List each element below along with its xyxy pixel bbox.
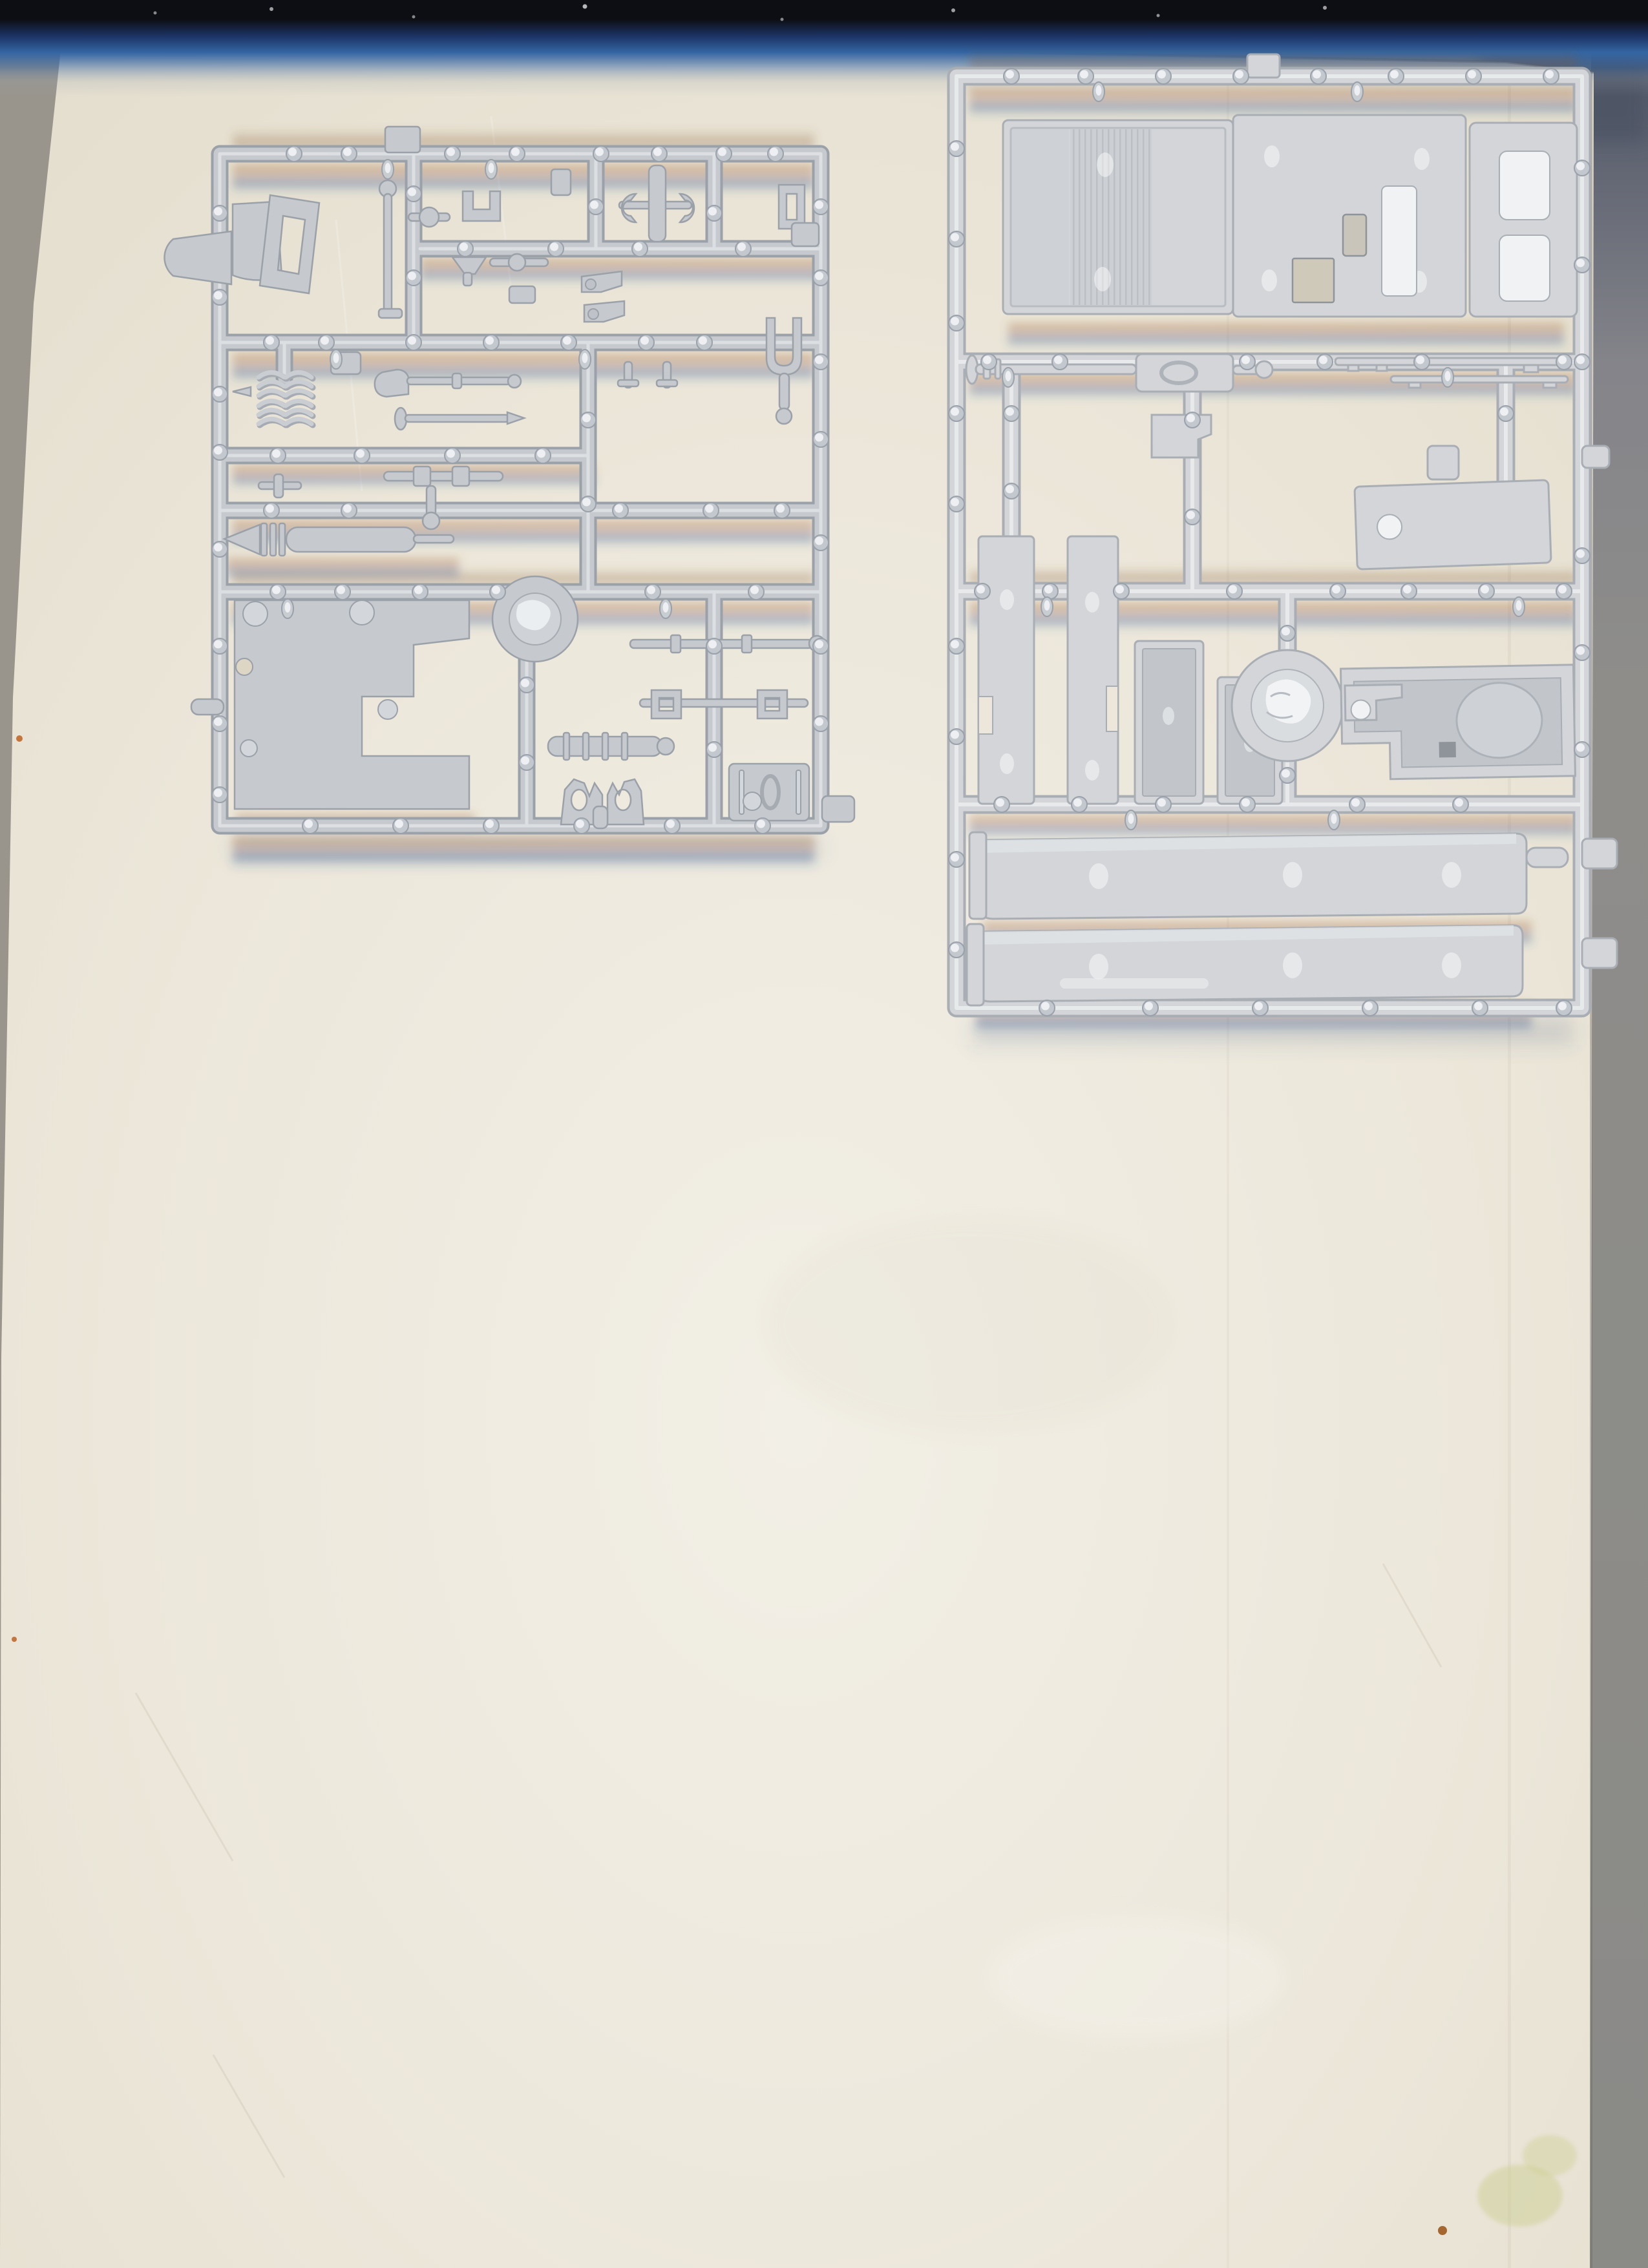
door-panel-part — [1470, 123, 1577, 317]
gear-lever-part — [384, 194, 392, 311]
sprue-gate — [1574, 160, 1590, 176]
sprue-gate — [483, 335, 499, 350]
sprue-gate — [1280, 625, 1295, 641]
tab-part — [1582, 938, 1617, 968]
sprue-gate — [1574, 645, 1590, 660]
sprue-gate — [212, 787, 227, 803]
sprue-gate — [1004, 68, 1019, 84]
sprue-gate — [212, 289, 227, 305]
sprue-gate — [212, 541, 227, 557]
sprue-gate — [1252, 1000, 1268, 1016]
sprue-gate — [1574, 257, 1590, 273]
right-margin-strip — [1591, 0, 1648, 2268]
sprue-gate — [706, 742, 722, 757]
roof-panel-part — [1233, 115, 1466, 317]
sprue-gate — [264, 503, 279, 518]
sprue-gate — [1114, 583, 1129, 599]
sprue-gate — [341, 146, 357, 162]
sprue-gate — [341, 503, 357, 518]
paper-smudge — [763, 1215, 1176, 1434]
sprue-gate — [1004, 483, 1019, 499]
sprue-gate — [716, 146, 732, 162]
block-part — [509, 286, 535, 303]
bracket-hole — [588, 309, 598, 319]
sprue-gate — [580, 412, 596, 428]
sprue-gate — [393, 818, 408, 834]
sprue-gate — [1317, 354, 1333, 370]
sprue-gate — [1078, 68, 1093, 84]
sprue-gate — [706, 205, 722, 221]
sprue-gate — [813, 199, 829, 215]
sprue-gate — [651, 146, 667, 162]
tab-part — [1582, 839, 1617, 868]
sprue-gate — [406, 186, 421, 202]
tab-part — [822, 796, 854, 822]
sprue-gate — [975, 583, 990, 599]
sprue-gate — [1052, 354, 1068, 370]
stub-part — [191, 699, 224, 715]
sprue-gate — [264, 335, 279, 350]
tab-part — [792, 223, 819, 246]
bracket-hole — [586, 279, 596, 289]
sprue-gate — [406, 270, 421, 286]
sprue-gate — [270, 584, 286, 600]
sprue-gate — [1311, 68, 1326, 84]
sprue-gate — [1125, 810, 1137, 830]
sprue-gate — [1330, 583, 1346, 599]
sprue-gate — [490, 584, 505, 600]
sprue-gate — [445, 448, 460, 463]
chassis-rail-part — [969, 832, 1568, 919]
tab-part — [551, 169, 571, 195]
sprue-gate — [613, 503, 628, 518]
sprue-gate — [1185, 509, 1200, 525]
sprue-gate — [302, 818, 318, 834]
sprue-gate — [593, 146, 609, 162]
sprue-gate — [949, 729, 964, 744]
gear-lever-foot — [379, 309, 402, 318]
sprue-gate — [1240, 797, 1255, 812]
sprue-gate — [755, 818, 770, 834]
sprue-gate — [1479, 583, 1494, 599]
tab-part — [1247, 54, 1280, 78]
funnel-stem — [463, 273, 472, 286]
sprue-gate — [212, 386, 227, 402]
sprue-gate — [949, 406, 964, 421]
sprue-gate — [519, 677, 534, 693]
pin-part — [405, 415, 509, 422]
sprue-gate — [406, 335, 421, 350]
sprue-gate — [212, 445, 227, 460]
sprue-gate — [949, 141, 964, 156]
sprue-gate — [1574, 354, 1590, 370]
ball-joint — [419, 207, 439, 227]
sprue-gate — [548, 241, 564, 257]
fork-stem — [779, 373, 789, 410]
sprue-gate — [1401, 583, 1417, 599]
sprue-gate — [813, 354, 829, 370]
sprue-gate — [813, 535, 829, 551]
sprue-gate — [949, 315, 964, 331]
stub-part — [1582, 446, 1609, 468]
seat-panel-part — [729, 764, 809, 821]
sprue-gate — [1472, 1000, 1488, 1016]
sprue-gate — [1041, 597, 1053, 616]
sprue-gate — [1233, 68, 1249, 84]
sprue-gate — [535, 448, 551, 463]
sprue-gate — [813, 270, 829, 286]
sprue-gate — [1042, 583, 1058, 599]
orange-fleck — [12, 1637, 17, 1642]
sprue-gate — [1453, 797, 1468, 812]
sprue-gate — [286, 146, 302, 162]
sprue-gate — [382, 160, 394, 179]
sprue-gate — [949, 496, 964, 512]
sprue-gate — [1328, 810, 1340, 830]
sprue-gate — [1039, 1000, 1055, 1016]
sprue-gate — [445, 146, 460, 162]
sprue-gate — [1362, 1000, 1378, 1016]
roof-hatch-hole — [1293, 258, 1334, 302]
sprue-gate — [735, 241, 751, 257]
sprue-gate — [330, 350, 342, 369]
roof-slot — [1343, 215, 1366, 256]
sprue-gate — [1466, 68, 1481, 84]
sprue-gate — [270, 448, 286, 463]
ball-joint — [776, 408, 792, 424]
orange-fleck — [16, 735, 23, 742]
sprue-gate — [1185, 412, 1200, 428]
sprue-gate — [949, 638, 964, 654]
sprue-gate — [664, 818, 680, 834]
sprue-gate — [1556, 583, 1572, 599]
rail-coupler — [1527, 848, 1568, 867]
tab-part — [1428, 446, 1459, 479]
sprue-gate — [949, 231, 964, 247]
fender-nose-part — [165, 231, 232, 284]
sprue-gate — [1002, 368, 1014, 387]
seat-base-panel-part — [1355, 480, 1551, 569]
sprue-gate — [412, 584, 428, 600]
sprue-gate — [703, 503, 719, 518]
sprue-gate — [580, 496, 596, 512]
sprue-gate — [768, 146, 783, 162]
sprue-gate — [994, 797, 1009, 812]
cab-floor-part — [1003, 120, 1233, 314]
sprue-gate — [354, 448, 370, 463]
sprue-gate — [1513, 597, 1525, 616]
scanned-photo: Flatbed scan of two light-grey polystyre… — [0, 0, 1648, 2268]
paper-smudge-light — [989, 1916, 1286, 2039]
sprue-gate — [1240, 354, 1255, 370]
sprue-gate — [458, 241, 473, 257]
sprue-gate — [1498, 406, 1514, 421]
sprue-gate — [1414, 354, 1430, 370]
sprue-gate — [212, 205, 227, 221]
sprue-gate — [1574, 742, 1590, 757]
green-stain — [1523, 2135, 1577, 2176]
sprue-gate — [282, 599, 293, 618]
chassis-rail-part — [967, 924, 1523, 1005]
brown-fleck — [1438, 2226, 1447, 2235]
tab-part — [385, 127, 420, 152]
sprue-gate — [212, 638, 227, 654]
sprue-gate — [813, 716, 829, 731]
sprue-gate — [335, 584, 350, 600]
sprue-gate — [1351, 82, 1363, 101]
sprue-gate — [483, 818, 499, 834]
sprue-gate — [1227, 583, 1242, 599]
sprue-gate — [1574, 548, 1590, 563]
sprue-gate — [1156, 68, 1171, 84]
ball-joint — [509, 254, 525, 271]
sprue-gate — [813, 432, 829, 447]
sprue-gate — [319, 335, 334, 350]
finned-cylinder-part — [548, 733, 674, 760]
sprue-gate — [697, 335, 712, 350]
sprue-gate — [509, 146, 525, 162]
sprue-gate — [1156, 797, 1171, 812]
sprue-gate — [1280, 768, 1295, 783]
sprue-gate — [588, 199, 604, 215]
roof-pad — [1382, 186, 1417, 296]
wheel-disc-part — [1232, 650, 1343, 761]
sprue-gate — [1093, 82, 1104, 101]
sprue-gate — [706, 638, 722, 654]
sprue-gate — [574, 818, 589, 834]
sprue-gate — [1388, 68, 1404, 84]
sprue-gate — [949, 942, 964, 958]
sprue-gate — [1556, 1000, 1572, 1016]
sprue-gate — [949, 852, 964, 867]
sprue-gate — [1442, 368, 1453, 387]
sprue-gate — [645, 584, 660, 600]
sprue-gate — [1556, 354, 1572, 370]
sprue-gate — [660, 599, 671, 618]
sprue-gate — [813, 638, 829, 654]
sprue-gate — [1143, 1000, 1158, 1016]
sprue-gate — [1543, 68, 1559, 84]
sprue-gate — [519, 755, 534, 770]
scan-canvas — [0, 0, 1648, 2268]
sprue-gate — [639, 335, 654, 350]
sprue-gate — [774, 503, 790, 518]
sprue-gate — [632, 241, 648, 257]
sprue-gate — [1072, 797, 1087, 812]
sprue-gate — [212, 716, 227, 731]
sprue-gate — [1349, 797, 1365, 812]
sprue-gate — [561, 335, 576, 350]
sprue-gate — [1004, 406, 1019, 421]
sprue-gate — [485, 160, 497, 179]
sprue-gate — [579, 350, 591, 369]
sprue-gate — [748, 584, 764, 600]
sprue-gate — [981, 354, 997, 370]
